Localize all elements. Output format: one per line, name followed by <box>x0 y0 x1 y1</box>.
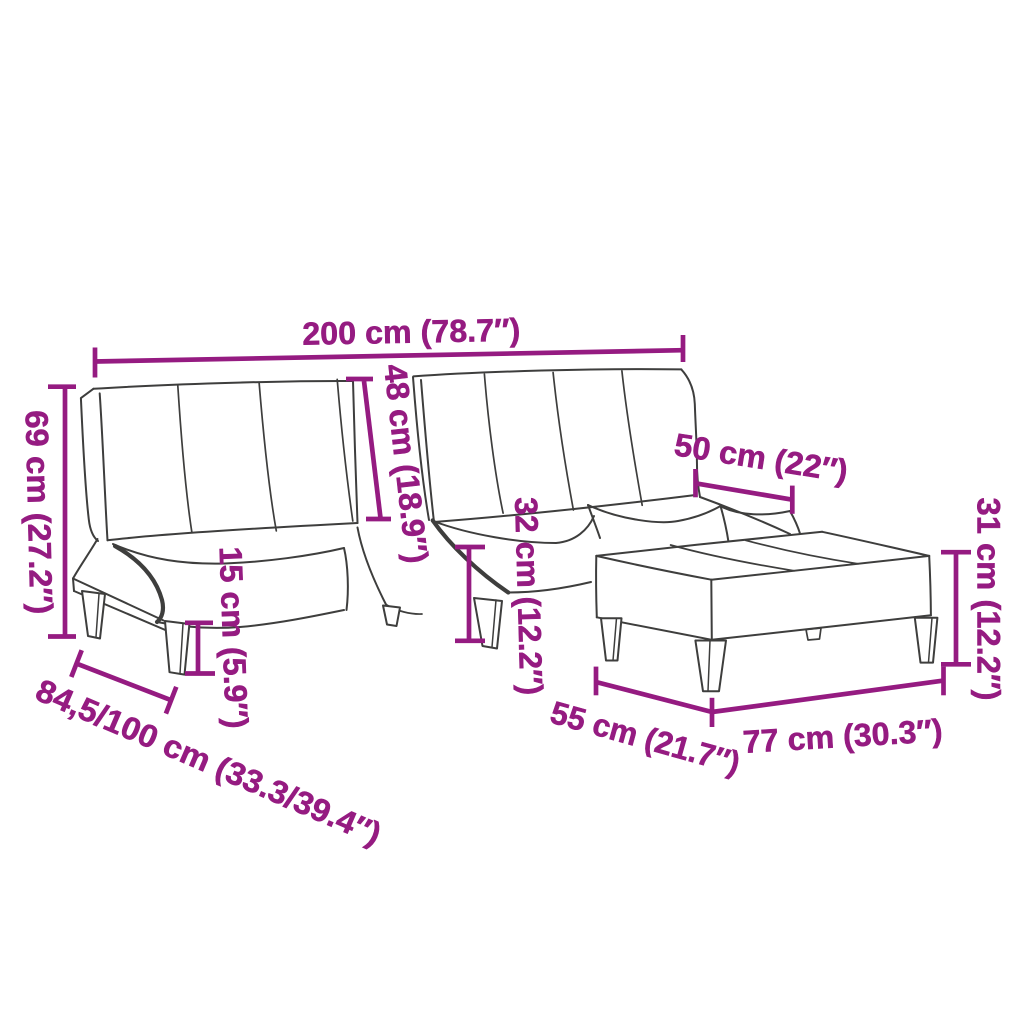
svg-text:31 cm (12.2″): 31 cm (12.2″) <box>971 498 1007 701</box>
svg-text:69 cm (27.2″): 69 cm (27.2″) <box>19 410 60 615</box>
svg-text:32 cm (12.2″): 32 cm (12.2″) <box>508 497 550 696</box>
svg-text:200 cm (78.7″): 200 cm (78.7″) <box>302 312 521 352</box>
svg-text:15 cm (5.9″): 15 cm (5.9″) <box>213 546 255 729</box>
